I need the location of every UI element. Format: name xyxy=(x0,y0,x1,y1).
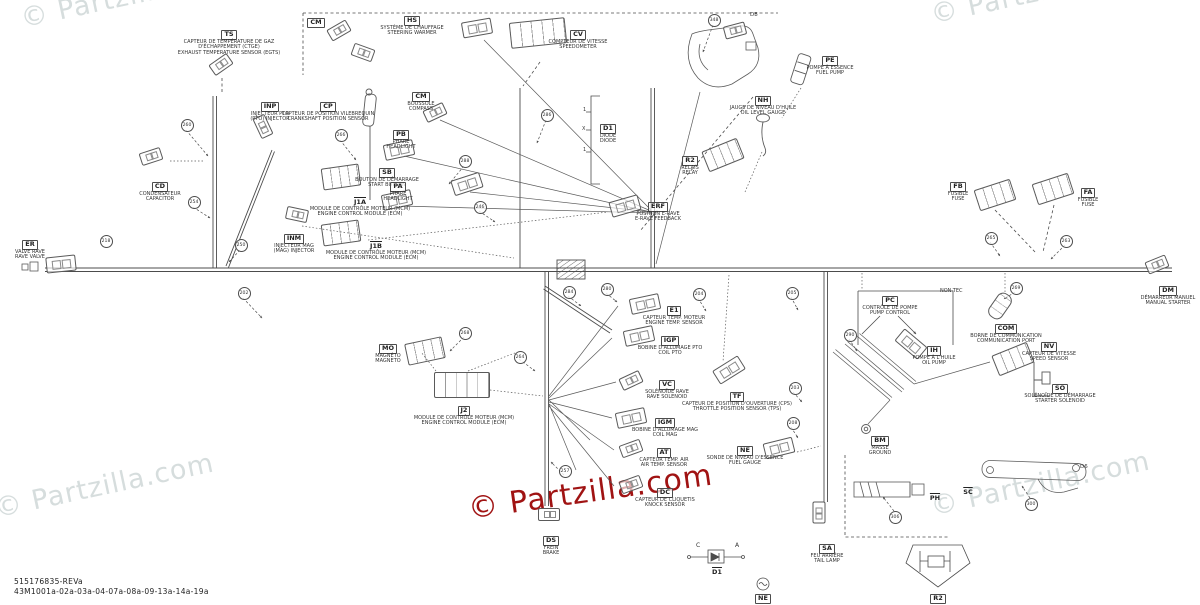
note-text: 1 xyxy=(583,107,586,113)
note-text: D8 xyxy=(750,12,758,18)
note-text: NON-TEC xyxy=(940,288,962,294)
sheet-codes: 43M1001a-02a-03a-04-07a-08a-09-13a-14a-1… xyxy=(14,587,209,597)
notes-layer: NON-TECD8D6CA1X1 xyxy=(0,0,1200,605)
footer: 515176835-REVa 43M1001a-02a-03a-04-07a-0… xyxy=(14,577,209,597)
note-text: 1 xyxy=(583,147,586,153)
note-text: X xyxy=(582,126,585,132)
note-text: D6 xyxy=(1080,464,1088,470)
note-text: A xyxy=(735,542,739,549)
part-number: 515176835-REVa xyxy=(14,577,209,587)
diagram-canvas: © Partzilla.com© Partzilla.com© Partzill… xyxy=(0,0,1200,605)
note-text: C xyxy=(696,542,700,549)
